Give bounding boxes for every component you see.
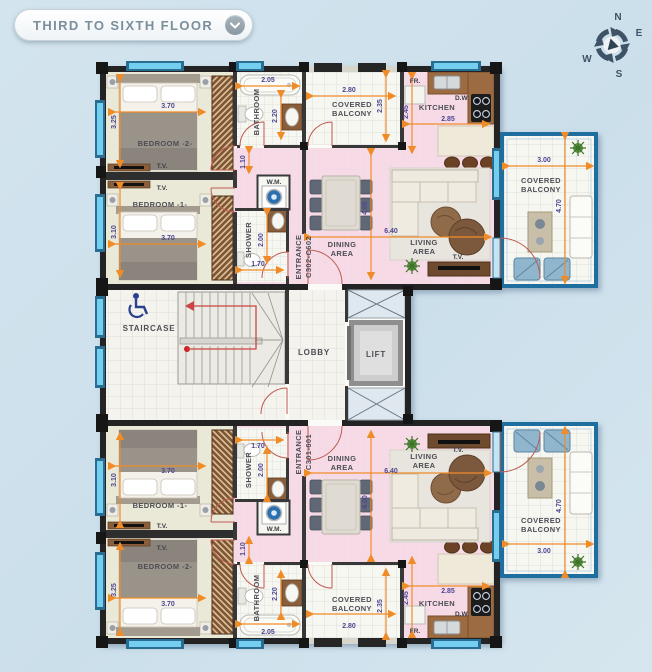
room-label-covered-balcony-right: BALCONY — [521, 185, 561, 194]
wm-label: W.M. — [267, 526, 282, 533]
tv-label: T.V. — [453, 447, 464, 454]
dim-living-width: 6.40 — [384, 228, 398, 235]
dim-bedroom1-height: 3.10 — [111, 225, 118, 239]
dim-balcony-mid-width: 2.80 — [342, 87, 356, 94]
tv-label: T.V. — [453, 254, 464, 261]
room-label-kitchen: KITCHEN — [419, 103, 455, 112]
compass-north: N — [614, 12, 621, 23]
dim-kitchen-width: 2.85 — [441, 116, 455, 123]
dim-shower-height: 2.00 — [258, 463, 265, 477]
entrance-label: ENTRANCE — [294, 235, 303, 280]
dim-bedroom1-height: 3.10 — [111, 473, 118, 487]
plant-icon — [570, 140, 586, 156]
dim-kitchen-height: 2.45 — [403, 105, 410, 119]
dim-bathroom-height: 2.20 — [272, 109, 279, 123]
dim-living-height: 4.00 — [362, 495, 369, 509]
floor-selector-label: THIRD TO SIXTH FLOOR — [33, 18, 213, 33]
entrance-label: ENTRANCE — [294, 430, 303, 475]
room-label-covered-balcony-right: BALCONY — [521, 525, 561, 534]
lift-label: LIFT — [366, 350, 386, 359]
entrance-code-lower: C301-601 — [304, 434, 313, 470]
tv-label: T.V. — [157, 185, 168, 192]
dim-shower-width: 1.70 — [251, 261, 265, 268]
fridge-label: FR. — [410, 628, 421, 635]
floor-selector-button[interactable]: THIRD TO SIXTH FLOOR — [14, 9, 253, 41]
dim-bedroom1-width: 3.70 — [161, 468, 175, 475]
room-label-shower: SHOWER — [244, 222, 253, 258]
bed — [107, 74, 211, 171]
room-label-covered-balcony-right: COVERED — [521, 176, 561, 185]
room-label-dining: AREA — [331, 249, 354, 258]
chevron-down-icon — [225, 15, 245, 35]
dim-living-width: 6.40 — [384, 468, 398, 475]
room-label-dining: DINING — [328, 454, 357, 463]
dim-bedroom1-width: 3.70 — [161, 235, 175, 242]
room-label-bedroom1: BEDROOM -1- — [133, 200, 188, 209]
lobby-label: LOBBY — [298, 348, 330, 357]
tv-label: T.V. — [157, 545, 168, 552]
dim-bedroom2-height: 3.25 — [111, 583, 118, 597]
room-label-bedroom2: BEDROOM -2- — [138, 139, 193, 148]
room-label-covered-balcony: COVERED — [332, 100, 372, 109]
tv-label: T.V. — [157, 523, 168, 530]
room-label-dining: DINING — [328, 240, 357, 249]
dim-bedroom2-height: 3.25 — [111, 115, 118, 129]
dim-balcony-right-width: 3.00 — [537, 157, 551, 164]
room-label-bathroom: BATHROOM — [252, 575, 261, 622]
sink — [282, 104, 302, 130]
floor-plan-page: 3.70 3.25 BEDROOM -2- T.V. T.V. BEDROOM … — [0, 0, 652, 672]
dim-balcony-mid-width: 2.80 — [342, 623, 356, 630]
room-label-living: LIVING — [410, 238, 437, 247]
dim-bathroom-width: 2.05 — [261, 629, 275, 636]
room-label-kitchen: KITCHEN — [419, 599, 455, 608]
dim-bedroom2-width: 3.70 — [161, 103, 175, 110]
plant-icon — [404, 258, 420, 274]
sink — [268, 210, 288, 232]
tv-label: T.V. — [157, 163, 168, 170]
staircase-steps — [178, 292, 285, 387]
room-label-shower: SHOWER — [244, 452, 253, 488]
dim-bedroom2-width: 3.70 — [161, 601, 175, 608]
living-furniture — [390, 168, 490, 276]
dim-balcony-right-height: 4.70 — [556, 199, 563, 213]
dim-balcony-mid-height: 2.35 — [377, 99, 384, 113]
room-label-covered-balcony: BALCONY — [332, 604, 372, 613]
staircase-label: STAIRCASE — [123, 324, 176, 333]
compass-rose-icon: N E S W — [582, 12, 642, 80]
floor-plan-canvas: 3.70 3.25 BEDROOM -2- T.V. T.V. BEDROOM … — [0, 0, 652, 672]
compass-south: S — [616, 69, 623, 80]
room-label-covered-balcony-right: COVERED — [521, 516, 561, 525]
compass-west: W — [582, 54, 592, 65]
dim-kitchen-width: 2.85 — [441, 588, 455, 595]
dim-hall-width: 1.10 — [240, 155, 247, 169]
room-label-bedroom2: BEDROOM -2- — [138, 562, 193, 571]
room-label-covered-balcony: BALCONY — [332, 109, 372, 118]
room-label-living: LIVING — [410, 452, 437, 461]
room-label-covered-balcony: COVERED — [332, 595, 372, 604]
dim-kitchen-height: 2.45 — [403, 591, 410, 605]
entrance-code-upper: C302-C602 — [304, 236, 313, 278]
room-label-dining: AREA — [331, 463, 354, 472]
room-label-bathroom: BATHROOM — [252, 89, 261, 136]
dim-living-height: 4.00 — [362, 201, 369, 215]
dishwasher-label: D.W. — [455, 95, 469, 102]
wm-label: W.M. — [267, 179, 282, 186]
dim-balcony-right-width: 3.00 — [537, 548, 551, 555]
fridge-label: FR. — [410, 78, 421, 85]
room-label-bedroom1: BEDROOM -1- — [133, 501, 188, 510]
compass-east: E — [636, 28, 643, 39]
dishwasher-label: D.W. — [455, 611, 469, 618]
dim-balcony-mid-height: 2.35 — [377, 599, 384, 613]
dim-shower-height: 2.00 — [258, 233, 265, 247]
dim-balcony-right-height: 4.70 — [556, 499, 563, 513]
dim-bathroom-width: 2.05 — [261, 77, 275, 84]
dim-shower-width: 1.70 — [251, 443, 265, 450]
dim-bathroom-height: 2.20 — [272, 587, 279, 601]
dim-hall-width: 1.10 — [240, 542, 247, 556]
room-label-living: AREA — [413, 461, 436, 470]
room-label-living: AREA — [413, 247, 436, 256]
